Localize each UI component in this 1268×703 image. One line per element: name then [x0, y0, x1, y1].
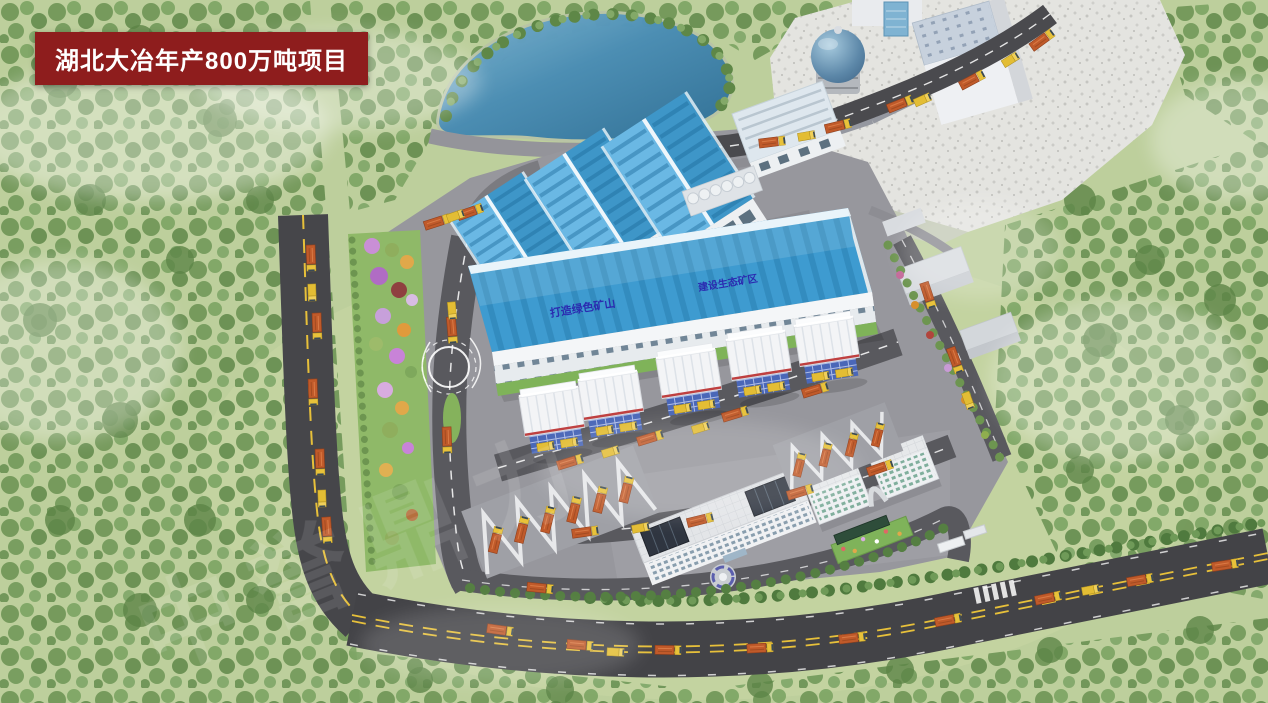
screen-tower — [884, 2, 908, 36]
scene-canvas — [0, 0, 1268, 703]
site-aerial-render: 中誉鼎力 湖北大冶年产800万吨项目 打造绿色矿山 建设生态矿区 — [0, 0, 1268, 703]
project-title-banner: 湖北大冶年产800万吨项目 — [35, 32, 368, 85]
